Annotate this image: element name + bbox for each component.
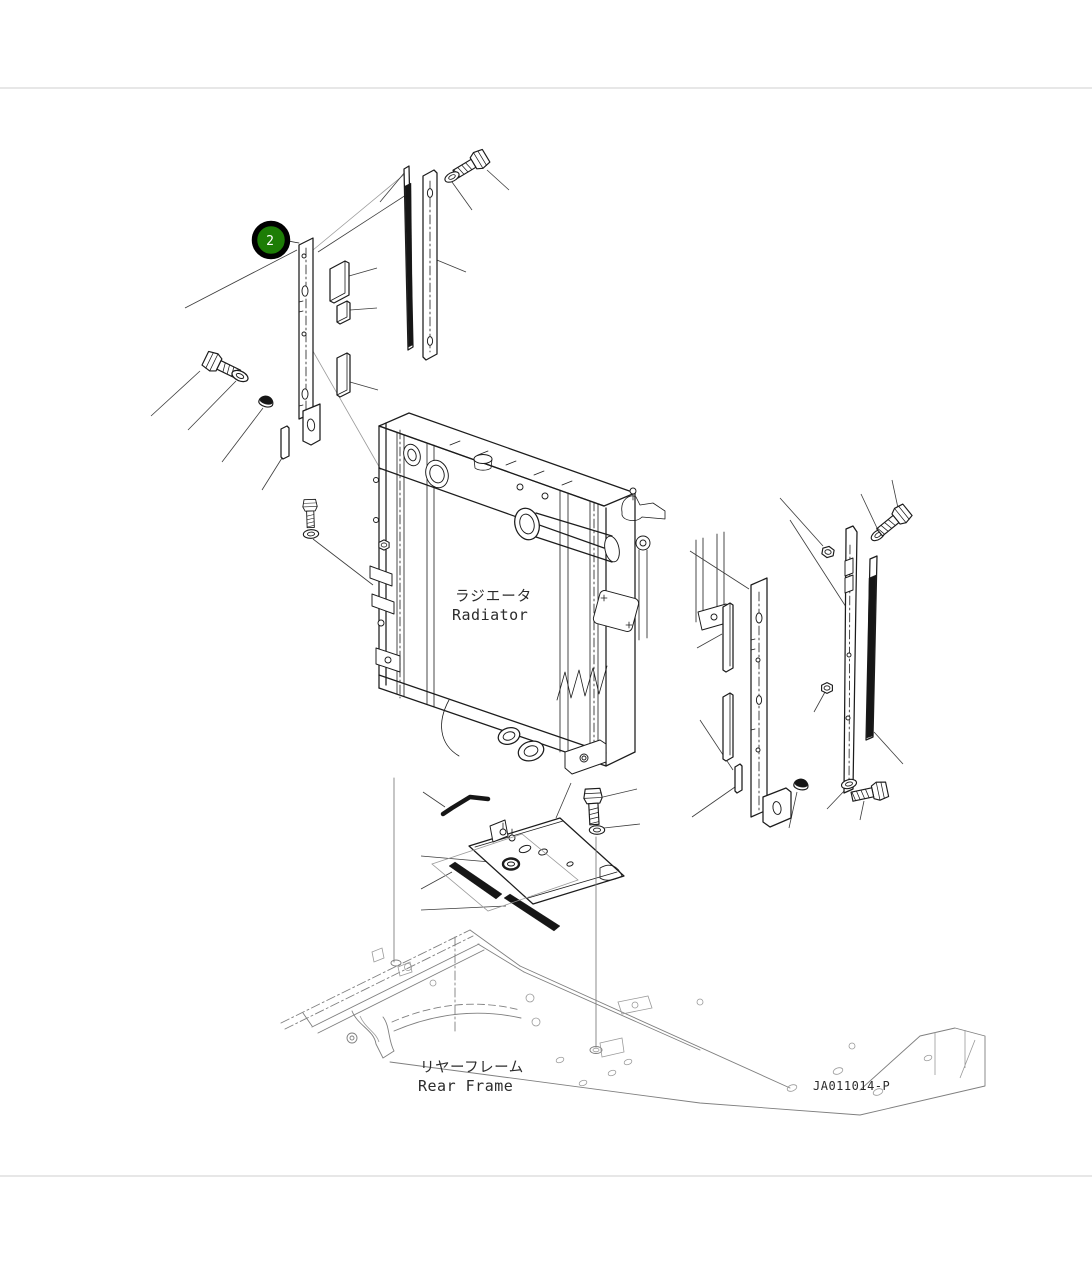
bracket-strip-top [423,170,437,360]
seal-strip-lower-left [281,426,289,459]
radiator-side-bracket-right [751,578,791,827]
seal-strip-r2 [723,693,733,761]
seal-strip-right-dark [866,556,877,740]
plate-grommet [503,859,519,870]
bent-rod [443,797,488,814]
seal-strip-r1 [723,603,733,672]
nut-lower [822,683,833,694]
drain-hose [442,700,459,756]
parts-catalog-page: ラジエータ Radiator [0,0,1092,1261]
radiator-side-bracket-left [288,238,320,445]
washer-small [303,529,319,539]
bottom-ports [496,725,546,764]
callout-number: 2 [266,234,274,249]
washer [589,826,604,835]
grommet [793,778,809,791]
right-bracket-assembly [690,480,913,828]
seal-pad-strip [337,353,350,397]
top-seal-assembly [318,148,509,360]
rear-frame-label-ja: リヤーフレーム [420,1060,524,1076]
washer-lower [840,778,857,790]
nut [821,545,834,558]
seal-strip-top [404,166,413,350]
filler-cap [474,455,492,471]
parts-diagram-canvas: ラジエータ Radiator [0,0,1092,1261]
seal-pad-small [337,301,350,324]
callout-balloon-2[interactable]: 2 [255,224,288,257]
hex-bolt [583,788,603,825]
leader-lines-top [318,170,509,272]
seal-pad-large [330,261,349,303]
radiator-label-ja: ラジエータ [455,588,532,605]
hex-bolt-small [303,499,318,528]
seal-strip-r3 [735,764,742,793]
rear-frame-label-en: Rear Frame [418,1077,513,1095]
nut [379,540,389,550]
bottom-mount-foot [565,740,606,774]
radiator-drawing: ラジエータ Radiator [370,413,730,774]
grommet [258,394,275,408]
bracket-strip-right [844,526,857,793]
radiator-label-en: Radiator [452,606,528,624]
drawing-number: JA011014-P [813,1079,890,1093]
upper-mount-bracket [592,488,665,640]
